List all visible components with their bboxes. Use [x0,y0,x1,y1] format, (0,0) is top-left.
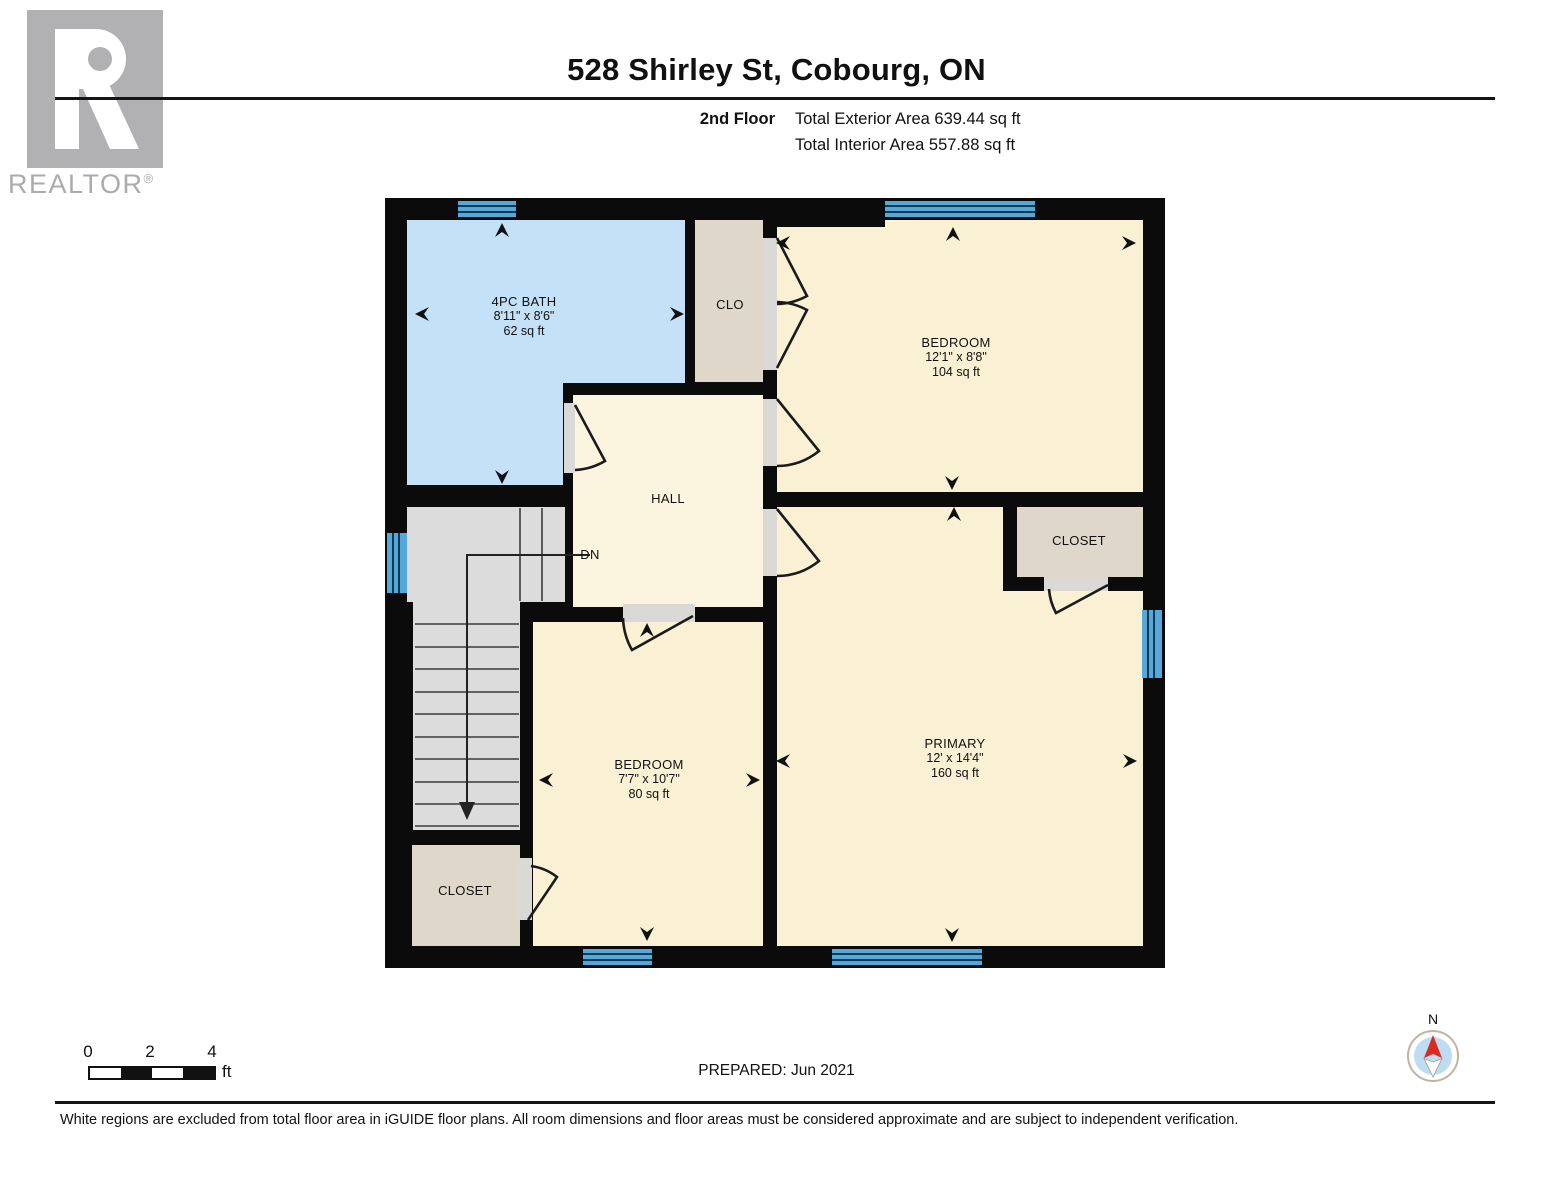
door-bath [575,405,605,470]
label-clo: CLO [690,297,770,312]
floor-label: 2nd Floor [555,110,775,129]
door-hall-bedroom [777,399,819,466]
page-title: 528 Shirley St, Cobourg, ON [0,52,1553,88]
compass-icon [1406,1029,1460,1083]
label-bedroom-top: BEDROOM 12'1" x 8'8" 104 sq ft [876,335,1036,380]
label-closet-bottom-left: CLOSET [405,883,525,898]
stairs-down-arrowhead [459,802,475,820]
door-clo-upper [777,238,807,304]
interior-area: Total Interior Area 557.88 sq ft [795,136,1015,155]
footer-divider [55,1101,1495,1104]
disclaimer-text: White regions are excluded from total fl… [60,1112,1520,1128]
door-closet-bottom-left [528,866,557,920]
door-hall-primary [777,509,819,576]
label-bedroom-bottom: BEDROOM 7'7" x 10'7" 80 sq ft [569,757,729,802]
label-bath: 4PC BATH 8'11" x 8'6" 62 sq ft [444,294,604,339]
label-primary: PRIMARY 12' x 14'4" 160 sq ft [875,736,1035,781]
scale-tick-2: 2 [135,1042,165,1062]
label-dn: DN [565,547,615,562]
realtor-logo-text: REALTOR® [8,169,228,200]
compass-north-label: N [1419,1011,1447,1027]
door-clo-lower [777,302,807,368]
scale-tick-4: 4 [197,1042,227,1062]
label-closet-right: CLOSET [1019,533,1139,548]
realtor-logo-icon [27,10,163,168]
door-hall-bedroom-bottom [623,616,693,650]
floorplan: 4PC BATH 8'11" x 8'6" 62 sq ft CLO BEDRO… [385,198,1165,968]
prepared-date: PREPARED: Jun 2021 [0,1062,1553,1080]
title-divider [55,97,1495,100]
door-closet-right [1049,585,1108,613]
scale-tick-0: 0 [73,1042,103,1062]
floorplan-page: REALTOR® 528 Shirley St, Cobourg, ON 2nd… [0,0,1553,1200]
label-hall: HALL [608,491,728,506]
exterior-area: Total Exterior Area 639.44 sq ft [795,110,1021,129]
